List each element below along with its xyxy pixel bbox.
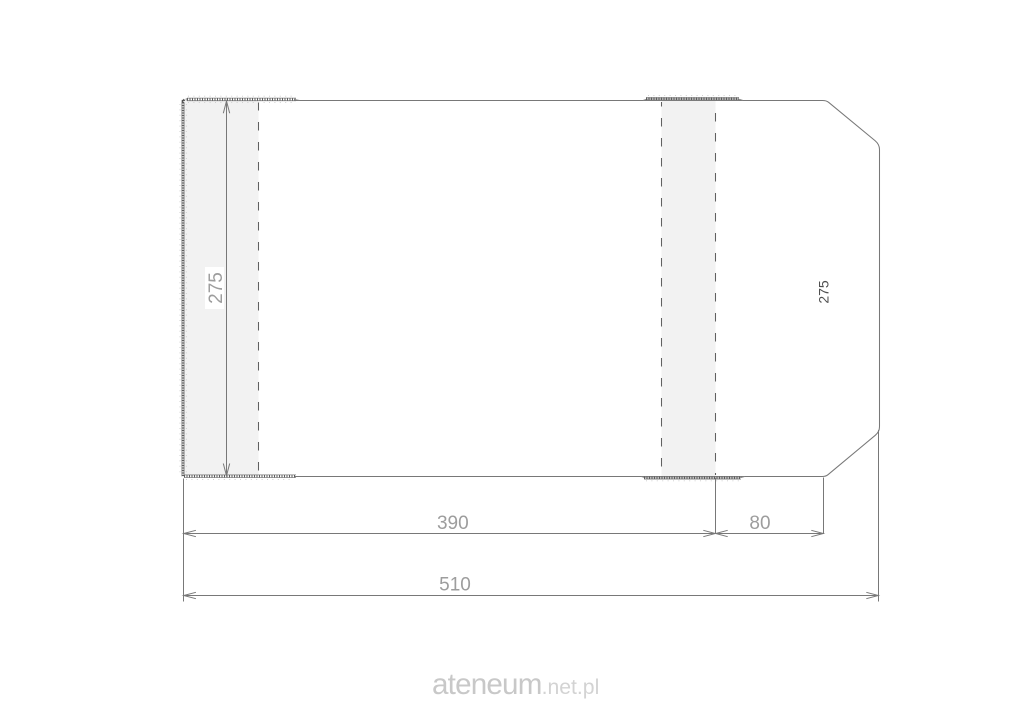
svg-text:275: 275 [206,272,227,304]
svg-text:ateneum.net.pl: ateneum.net.pl [432,668,599,701]
svg-text:275: 275 [816,280,832,304]
svg-text:510: 510 [439,575,471,596]
svg-text:390: 390 [437,513,469,534]
svg-text:80: 80 [749,513,770,534]
